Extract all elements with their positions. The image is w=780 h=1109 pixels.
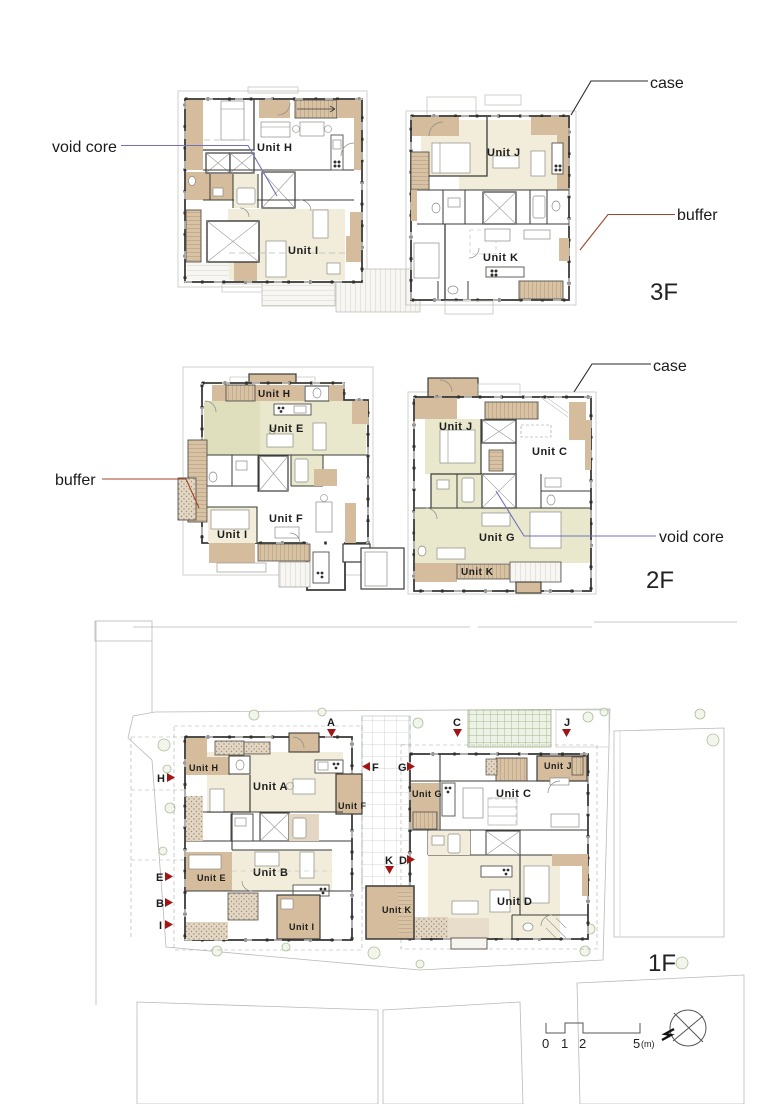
svg-text:K: K (385, 855, 393, 867)
svg-text:0: 0 (542, 1036, 549, 1051)
svg-text:Unit E: Unit E (197, 873, 226, 883)
svg-text:E: E (156, 872, 163, 884)
svg-text:5: 5 (633, 1036, 640, 1051)
svg-text:case: case (650, 75, 684, 92)
svg-text:void core: void core (52, 139, 117, 156)
svg-text:Unit K: Unit K (382, 905, 412, 915)
svg-text:1: 1 (561, 1036, 568, 1051)
svg-text:2: 2 (579, 1036, 586, 1051)
svg-text:C: C (453, 717, 461, 729)
svg-text:Unit J: Unit J (439, 421, 473, 433)
svg-text:Unit E: Unit E (269, 423, 304, 435)
svg-text:F: F (372, 762, 379, 774)
svg-text:D: D (399, 855, 407, 867)
svg-text:Unit K: Unit K (483, 252, 518, 264)
svg-text:3F: 3F (650, 279, 678, 306)
svg-text:1F: 1F (648, 950, 676, 977)
svg-text:H: H (157, 773, 165, 785)
svg-text:Unit A: Unit A (253, 781, 288, 793)
svg-text:I: I (159, 920, 162, 932)
svg-text:Unit I: Unit I (289, 922, 315, 932)
svg-text:Unit F: Unit F (338, 801, 367, 811)
svg-text:buffer: buffer (677, 207, 718, 224)
svg-text:Unit J: Unit J (544, 761, 572, 771)
svg-text:Unit G: Unit G (479, 532, 515, 544)
svg-text:Unit H: Unit H (189, 763, 219, 773)
svg-text:Unit I: Unit I (288, 245, 319, 257)
svg-text:Unit I: Unit I (217, 529, 248, 541)
svg-text:Unit H: Unit H (258, 389, 290, 400)
svg-text:A: A (327, 717, 335, 729)
svg-text:buffer: buffer (55, 472, 96, 489)
svg-text:Unit G: Unit G (412, 789, 442, 799)
svg-text:B: B (156, 898, 164, 910)
svg-text:void core: void core (659, 529, 724, 546)
svg-text:case: case (653, 358, 687, 375)
svg-text:G: G (398, 762, 407, 774)
svg-text:Unit D: Unit D (497, 896, 532, 908)
svg-text:Unit C: Unit C (496, 788, 531, 800)
svg-text:Unit B: Unit B (253, 867, 288, 879)
svg-text:J: J (564, 717, 570, 729)
svg-text:(m): (m) (641, 1039, 655, 1049)
svg-text:Unit C: Unit C (532, 446, 567, 458)
svg-text:Unit H: Unit H (257, 142, 292, 154)
svg-text:Unit F: Unit F (269, 513, 303, 525)
svg-text:Unit J: Unit J (487, 147, 521, 159)
svg-text:2F: 2F (646, 567, 674, 594)
svg-text:Unit K: Unit K (461, 567, 494, 578)
